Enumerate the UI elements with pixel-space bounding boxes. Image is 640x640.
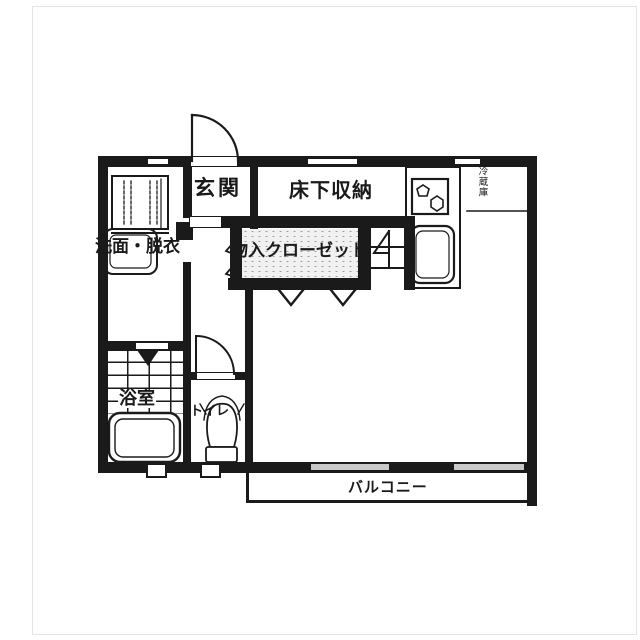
bathroom-door-mark [137,350,159,366]
entrance-door-swing [192,115,238,161]
kitchen-sink [411,226,454,283]
bathroom-label: 浴室 [118,390,156,408]
closet-label: 物入クローゼット [231,243,367,260]
floor-plan: 玄関 床下収納 物入クローゼット 洗面・脱衣 浴室 トイレ バルコニー 冷蔵庫 [0,0,640,640]
underfloor-storage-label: 床下収納 [257,180,405,200]
counter-pass-through [372,231,404,268]
entrance-label: 玄関 [194,178,242,199]
washing-machine-space [112,176,168,233]
kitchen-stove [412,179,448,214]
refrigerator-label: 冷蔵庫 [477,166,487,198]
toilet-label: トイレ [190,405,229,418]
closet-folding-door-marks [279,290,355,305]
bathtub [109,413,180,462]
washroom-label: 洗面・脱衣 [95,239,180,256]
balcony-label: バルコニー [348,480,428,495]
toilet-door-swing [196,336,234,374]
